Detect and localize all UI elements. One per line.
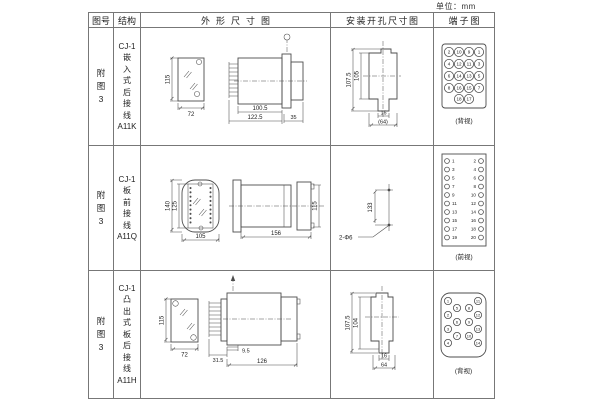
unit-label: 单位：mm xyxy=(436,1,476,12)
terminal-number: 5 xyxy=(478,74,481,79)
terminal-number: 12 xyxy=(476,312,481,317)
header-text: 图号 xyxy=(92,14,110,27)
column-header-outline: 外形尺寸图 xyxy=(141,13,331,28)
dim-width: 105 xyxy=(195,234,206,240)
outline-drawing-row1: 115 72 100.5 122.5 35 xyxy=(141,28,331,146)
dim-slot: 16 xyxy=(381,354,387,360)
structure-label-row2: CJ-1 板 前 接 线 A11Q xyxy=(114,146,141,271)
terminal-drawing-row2: 1 3 5 7 9 11 13 15 17 19 2 4 6 8 10 12 1 xyxy=(434,146,494,271)
terminal-number: 7 xyxy=(452,184,455,189)
front-view: 115 72 xyxy=(160,298,199,359)
view-label: (背视) xyxy=(455,116,472,125)
terminal-svg-row2: 1 3 5 7 9 11 13 15 17 19 2 4 6 8 10 12 1 xyxy=(434,146,493,269)
terminal-number: 10 xyxy=(456,50,462,55)
header-text: 安装开孔尺寸图 xyxy=(346,14,420,27)
terminal-number: 15 xyxy=(452,218,458,223)
terminal-number: 14 xyxy=(476,340,481,345)
terminal-number: 17 xyxy=(452,227,458,232)
dim-inner-height: 125 xyxy=(173,200,179,211)
terminal-number: 19 xyxy=(452,235,458,240)
terminal-number: 10 xyxy=(471,193,477,198)
mounting-svg-row2: 133 2-Φ6 xyxy=(331,146,433,269)
terminal-number: 7 xyxy=(478,86,481,91)
outline-svg-row1: 115 72 100.5 122.5 35 xyxy=(141,28,329,145)
dim-body-length: 156 xyxy=(271,231,282,237)
structure-label-row1: CJ-1 嵌 入 式 后 接 线 A11K xyxy=(114,28,141,146)
mounting-drawing-row2: 133 2-Φ6 xyxy=(331,146,434,271)
terminal-number: 14 xyxy=(471,210,477,215)
terminal-svg-row3: 1 2 3 4 5 6 7 8 9 10 11 12 13 14 (背视) xyxy=(434,271,493,396)
front-view: 115 72 xyxy=(166,57,205,119)
dim-outer: 107.5 xyxy=(347,72,353,88)
dim-span: 64 xyxy=(381,363,387,369)
dim-side-height: 115 xyxy=(313,201,319,211)
dim-flange-length: 35 xyxy=(290,115,296,121)
side-view: 156 115 xyxy=(229,180,325,239)
outline-svg-row3: 115 72 31.5 9.5 xyxy=(141,271,329,396)
terminal-pins: 1 2 3 4 5 6 7 8 9 10 11 12 13 14 xyxy=(444,297,481,346)
terminal-number: 11 xyxy=(467,62,472,67)
terminal-number: 12 xyxy=(456,62,462,67)
terminal-number: 13 xyxy=(476,326,481,331)
terminal-number: 14 xyxy=(456,74,462,79)
header-text: 外形尺寸图 xyxy=(201,14,276,27)
terminal-number: 2 xyxy=(448,50,451,55)
figure-number-row3: 附 图 3 xyxy=(89,271,114,398)
terminal-number: 8 xyxy=(448,86,451,91)
dim-height: 115 xyxy=(160,315,166,325)
mounting-drawing-row1: 107.5 105 16 (64) xyxy=(331,28,434,146)
terminal-number: 13 xyxy=(452,210,458,215)
outline-drawing-row3: 115 72 31.5 9.5 xyxy=(141,271,331,398)
terminal-number: 3 xyxy=(452,167,455,172)
dim-inner: 104 xyxy=(354,317,360,328)
column-header-figure: 图号 xyxy=(89,13,114,28)
terminal-drawing-row1: 2 10 9 1 4 12 11 3 6 14 13 5 8 16 15 7 1 xyxy=(434,28,494,146)
terminal-number: 3 xyxy=(478,62,481,67)
terminal-number: 9 xyxy=(468,50,471,55)
terminal-number: 16 xyxy=(456,86,462,91)
terminal-number: 1 xyxy=(478,50,481,55)
terminal-number: 6 xyxy=(473,176,476,181)
terminal-number: 13 xyxy=(466,74,472,79)
structure-label-row3: CJ-1 凸 出 式 板 后 接 线 A11H xyxy=(114,271,141,398)
mounting-drawing-row3: 107.5 104 16 64 xyxy=(331,271,434,398)
terminal-number: 16 xyxy=(471,218,477,223)
terminal-number: 6 xyxy=(448,74,451,79)
front-view: 140 125 105 xyxy=(166,179,220,242)
side-view: 100.5 122.5 35 xyxy=(229,34,307,124)
mounting-svg-row3: 107.5 104 16 64 xyxy=(331,271,433,396)
terminal-number: 1 xyxy=(452,159,455,164)
mounting-svg-row1: 107.5 105 16 (64) xyxy=(331,28,433,145)
dim-offset: 9.5 xyxy=(242,349,250,355)
dim-pin-length: 31.5 xyxy=(213,358,224,364)
view-label: (前视) xyxy=(455,252,472,261)
dim-body-length: 100.5 xyxy=(252,106,268,112)
terminal-number: 11 xyxy=(452,201,457,206)
terminal-svg-row1: 2 10 9 1 4 12 11 3 6 14 13 5 8 16 15 7 1 xyxy=(434,28,493,145)
terminal-number: 15 xyxy=(466,86,472,91)
terminal-pins: 2 10 9 1 4 12 11 3 6 14 13 5 8 16 15 7 1 xyxy=(444,47,483,103)
terminal-number: 8 xyxy=(473,184,476,189)
column-header-structure: 结构 xyxy=(114,13,141,28)
dim-outer: 107.5 xyxy=(346,315,352,331)
figure-number-row2: 附 图 3 xyxy=(89,146,114,271)
terminal-number: 9 xyxy=(452,193,455,198)
terminal-pins: 1 3 5 7 9 11 13 15 17 19 2 4 6 8 10 12 1 xyxy=(445,159,484,241)
dim-inner: 105 xyxy=(355,70,361,81)
dim-span: 133 xyxy=(368,202,374,213)
terminal-number: 18 xyxy=(471,227,477,232)
dim-span: (64) xyxy=(378,120,388,126)
side-view: 31.5 9.5 126 xyxy=(209,275,300,367)
outline-svg-row2: 140 125 105 156 115 xyxy=(141,146,329,269)
column-header-terminal: 端子图 xyxy=(434,13,494,28)
terminal-number: 17 xyxy=(466,97,472,102)
dim-total-length: 122.5 xyxy=(247,115,263,121)
view-label: (背视) xyxy=(455,366,472,375)
dim-body-length: 126 xyxy=(257,359,268,365)
terminal-number: 18 xyxy=(456,97,462,102)
header-text: 端子图 xyxy=(448,14,481,27)
dim-height: 115 xyxy=(166,74,172,84)
terminal-number: 20 xyxy=(471,235,477,240)
terminal-number: 4 xyxy=(448,62,451,67)
dim-width: 72 xyxy=(188,112,195,118)
manual-page: 单位：mm 图号 结构 外形尺寸图 安装开孔尺寸图 端子图 附 图 3 CJ-1… xyxy=(0,0,600,400)
dim-outer-height: 140 xyxy=(166,200,172,211)
terminal-number: 2 xyxy=(473,159,476,164)
outline-drawing-row2: 140 125 105 156 115 xyxy=(141,146,331,271)
dimension-table: 图号 结构 外形尺寸图 安装开孔尺寸图 端子图 附 图 3 CJ-1 嵌 入 式… xyxy=(88,12,495,399)
dim-slot: 16 xyxy=(380,111,386,117)
terminal-drawing-row3: 1 2 3 4 5 6 7 8 9 10 11 12 13 14 (背视) xyxy=(434,271,494,398)
terminal-number: 5 xyxy=(452,176,455,181)
dim-width: 72 xyxy=(181,353,188,359)
terminal-number: 12 xyxy=(471,201,477,206)
hole-label: 2-Φ6 xyxy=(339,236,353,242)
figure-number-row1: 附 图 3 xyxy=(89,28,114,146)
terminal-number: 4 xyxy=(473,167,476,172)
column-header-mounting: 安装开孔尺寸图 xyxy=(331,13,434,28)
terminal-number: 10 xyxy=(467,333,472,338)
header-text: 结构 xyxy=(118,14,136,27)
